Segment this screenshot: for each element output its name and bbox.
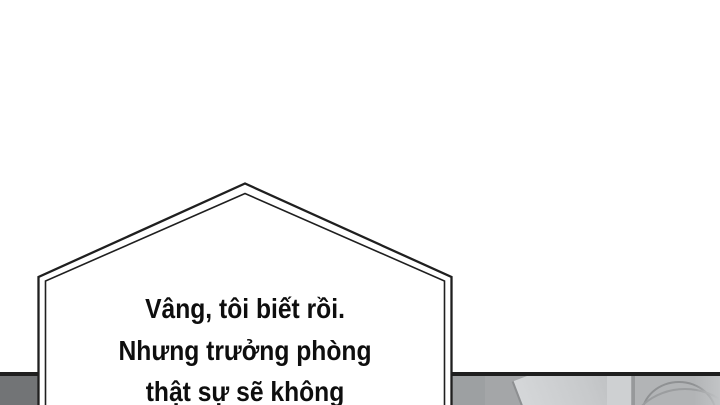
dialogue-line-1: Vâng, tôi biết rồi. [63, 288, 427, 330]
comic-panel: Vâng, tôi biết rồi. Nhưng trưởng phòng t… [0, 0, 720, 405]
dialogue-line-2: Nhưng trưởng phòng [63, 330, 427, 372]
dialogue-text: Vâng, tôi biết rồi. Nhưng trưởng phòng t… [63, 288, 427, 405]
dialogue-line-3: thật sự sẽ không [63, 371, 427, 405]
